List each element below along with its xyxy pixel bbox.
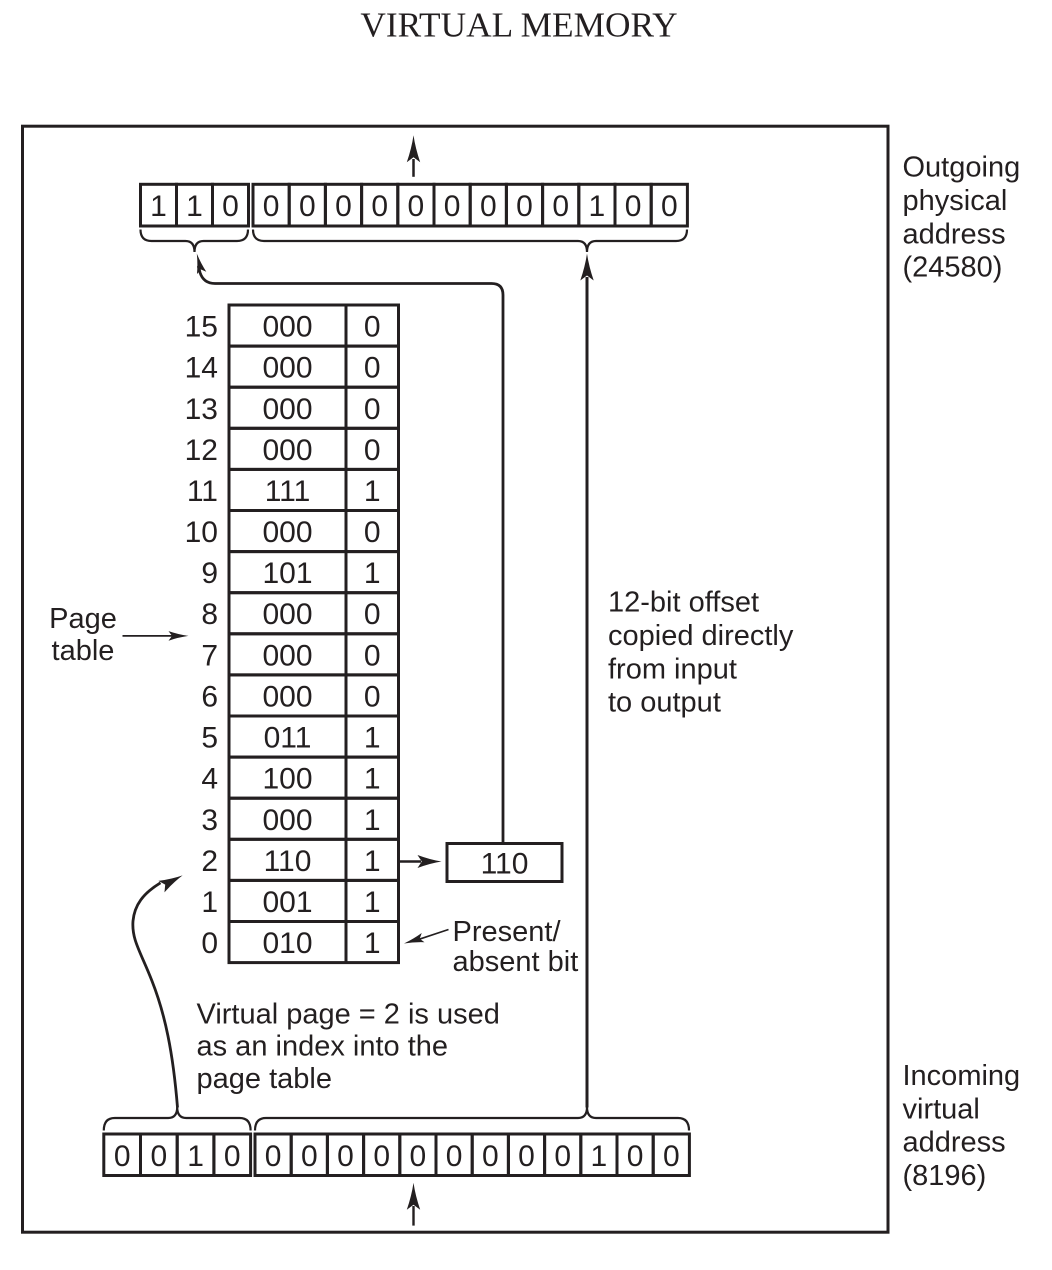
svg-text:000: 000 <box>262 434 312 467</box>
svg-text:12-bit offset: 12-bit offset <box>608 587 759 619</box>
svg-text:000: 000 <box>262 311 312 344</box>
svg-text:0: 0 <box>335 190 352 223</box>
svg-text:0: 0 <box>265 1140 282 1173</box>
svg-text:1: 1 <box>364 475 381 508</box>
svg-text:110: 110 <box>481 847 529 880</box>
svg-text:0: 0 <box>627 1140 644 1173</box>
svg-text:0: 0 <box>263 190 280 223</box>
svg-text:0: 0 <box>301 1140 318 1173</box>
svg-text:0: 0 <box>364 598 381 631</box>
svg-text:1: 1 <box>364 722 381 755</box>
svg-text:0: 0 <box>364 516 381 549</box>
svg-text:14: 14 <box>185 352 218 385</box>
svg-text:15: 15 <box>185 311 218 344</box>
svg-text:0: 0 <box>114 1140 131 1173</box>
svg-text:0: 0 <box>299 190 316 223</box>
svg-text:to output: to output <box>608 687 721 719</box>
svg-text:9: 9 <box>201 557 218 590</box>
svg-text:1: 1 <box>201 886 218 919</box>
svg-text:011: 011 <box>264 722 312 755</box>
svg-text:0: 0 <box>446 1140 463 1173</box>
svg-text:0: 0 <box>408 190 425 223</box>
svg-text:2: 2 <box>201 845 218 878</box>
svg-text:0: 0 <box>482 1140 499 1173</box>
svg-text:0: 0 <box>364 311 381 344</box>
svg-text:0: 0 <box>480 190 497 223</box>
svg-text:1: 1 <box>364 804 381 837</box>
svg-text:000: 000 <box>262 681 312 714</box>
svg-text:100: 100 <box>262 763 312 796</box>
svg-text:000: 000 <box>262 516 312 549</box>
svg-text:0: 0 <box>663 1140 680 1173</box>
svg-text:0: 0 <box>516 190 533 223</box>
svg-text:1: 1 <box>364 927 381 960</box>
svg-text:0: 0 <box>373 1140 390 1173</box>
svg-text:0: 0 <box>150 1140 167 1173</box>
svg-text:7: 7 <box>201 639 218 672</box>
svg-text:110: 110 <box>264 845 312 878</box>
svg-text:Outgoing: Outgoing <box>903 152 1021 184</box>
svg-text:3: 3 <box>201 804 218 837</box>
svg-text:0: 0 <box>444 190 461 223</box>
svg-text:12: 12 <box>185 434 218 467</box>
svg-text:(8196): (8196) <box>903 1160 987 1192</box>
svg-text:address: address <box>903 1127 1006 1159</box>
svg-text:copied directly: copied directly <box>608 620 794 652</box>
svg-text:0: 0 <box>364 393 381 426</box>
svg-text:001: 001 <box>262 886 312 919</box>
svg-text:000: 000 <box>262 804 312 837</box>
svg-text:4: 4 <box>201 763 218 796</box>
svg-text:0: 0 <box>222 190 239 223</box>
svg-text:1: 1 <box>364 886 381 919</box>
svg-text:8: 8 <box>201 598 218 631</box>
svg-text:5: 5 <box>201 722 218 755</box>
svg-text:(24580): (24580) <box>903 252 1003 284</box>
svg-text:000: 000 <box>262 639 312 672</box>
svg-text:absent bit: absent bit <box>453 946 579 978</box>
svg-text:1: 1 <box>364 763 381 796</box>
svg-text:0: 0 <box>337 1140 354 1173</box>
svg-text:0: 0 <box>364 352 381 385</box>
svg-text:virtual: virtual <box>903 1093 980 1125</box>
svg-text:6: 6 <box>201 681 218 714</box>
svg-text:page table: page table <box>197 1063 332 1095</box>
svg-text:0: 0 <box>625 190 642 223</box>
svg-text:VIRTUAL MEMORY: VIRTUAL MEMORY <box>360 6 677 45</box>
svg-text:1: 1 <box>186 190 203 223</box>
svg-text:13: 13 <box>185 393 218 426</box>
svg-text:000: 000 <box>262 352 312 385</box>
svg-text:from input: from input <box>608 653 737 685</box>
svg-text:Present/: Present/ <box>453 916 562 948</box>
svg-text:1: 1 <box>589 190 606 223</box>
svg-text:0: 0 <box>552 190 569 223</box>
svg-text:0: 0 <box>518 1140 535 1173</box>
svg-text:table: table <box>52 635 115 667</box>
svg-text:0: 0 <box>224 1140 241 1173</box>
svg-text:101: 101 <box>262 557 312 590</box>
svg-text:1: 1 <box>150 190 167 223</box>
svg-text:000: 000 <box>262 598 312 631</box>
svg-text:1: 1 <box>364 557 381 590</box>
svg-text:0: 0 <box>554 1140 571 1173</box>
svg-text:physical: physical <box>903 185 1008 217</box>
svg-text:1: 1 <box>187 1140 204 1173</box>
svg-text:as an index into the: as an index into the <box>197 1031 449 1063</box>
svg-text:10: 10 <box>185 516 218 549</box>
svg-text:0: 0 <box>364 639 381 672</box>
svg-text:Page: Page <box>49 603 117 635</box>
svg-text:0: 0 <box>661 190 678 223</box>
svg-text:010: 010 <box>262 927 312 960</box>
svg-text:0: 0 <box>201 927 218 960</box>
svg-text:1: 1 <box>591 1140 608 1173</box>
svg-text:1: 1 <box>364 845 381 878</box>
svg-text:111: 111 <box>265 475 311 508</box>
svg-text:0: 0 <box>364 681 381 714</box>
svg-text:address: address <box>903 218 1006 250</box>
svg-text:0: 0 <box>364 434 381 467</box>
svg-text:Virtual page = 2 is used: Virtual page = 2 is used <box>197 999 500 1031</box>
svg-text:Incoming: Incoming <box>903 1060 1021 1092</box>
svg-text:000: 000 <box>262 393 312 426</box>
svg-text:0: 0 <box>371 190 388 223</box>
svg-text:0: 0 <box>410 1140 427 1173</box>
svg-text:11: 11 <box>187 475 218 508</box>
